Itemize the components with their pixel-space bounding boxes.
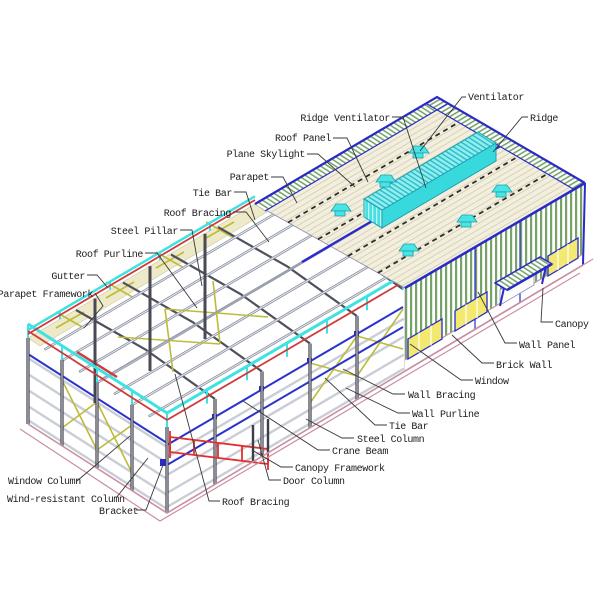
label-roof-purline-text: Roof Purline	[76, 249, 144, 261]
label-bracket-text: Bracket	[99, 506, 138, 518]
label-canopy-text: Canopy	[555, 320, 589, 331]
label-roof-bracing-top-text: Roof Bracing	[164, 208, 232, 220]
label-crane-beam-text: Crane Beam	[332, 447, 388, 458]
label-gutter-text: Gutter	[51, 272, 85, 283]
label-parapet-framework-text: Parapet Framework	[0, 289, 93, 301]
label-wall-bracing-text: Wall Bracing	[408, 390, 476, 402]
label-window-column-text: Window Column	[8, 476, 81, 488]
diagram-canvas: Ventilator Ridge Ridge Ventilator Roof P…	[0, 0, 600, 600]
label-plane-skylight-text: Plane Skylight	[227, 149, 305, 161]
label-roof-panel-text: Roof Panel	[275, 133, 331, 145]
label-canopy: Canopy	[541, 288, 589, 331]
label-tie-bar-wall-text: Tie Bar	[389, 421, 429, 433]
label-gutter: Gutter	[51, 272, 108, 288]
label-door-column-text: Door Column	[283, 476, 345, 488]
label-ridge-ventilator-text: Ridge Ventilator	[300, 113, 390, 125]
label-tie-bar-roof-text: Tie Bar	[193, 188, 233, 200]
label-parapet-text: Parapet	[230, 173, 269, 184]
label-steel-pillar-text: Steel Pillar	[111, 226, 179, 238]
label-steel-column-text: Steel Column	[357, 434, 425, 446]
label-canopy-framework-text: Canopy Framework	[295, 463, 385, 475]
label-roof-bracing-bottom-text: Roof Bracing	[222, 497, 290, 509]
label-wall-purline-text: Wall Purline	[412, 409, 480, 421]
steel-building-diagram: Ventilator Ridge Ridge Ventilator Roof P…	[0, 0, 600, 600]
label-ventilator-text: Ventilator	[468, 92, 524, 104]
label-ridge-text: Ridge	[530, 113, 558, 125]
label-brick-wall-text: Brick Wall	[496, 360, 552, 372]
label-window-text: Window	[475, 376, 509, 388]
label-wall-panel-text: Wall Panel	[519, 340, 575, 352]
label-wind-resistant-column-text: Wind-resistant Column	[7, 494, 125, 506]
